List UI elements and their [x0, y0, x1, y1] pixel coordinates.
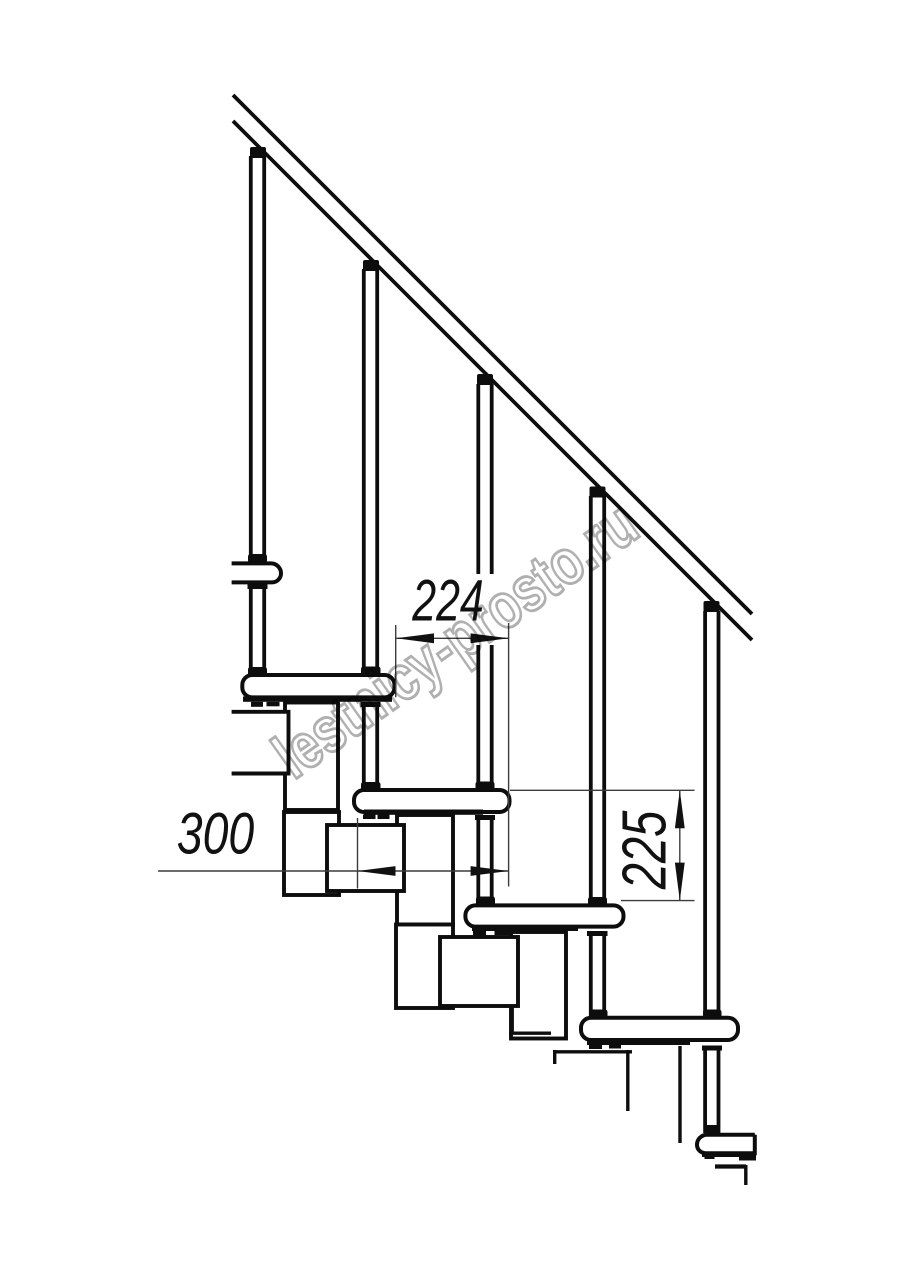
svg-text:225: 225: [609, 810, 679, 890]
svg-text:300: 300: [177, 802, 254, 867]
